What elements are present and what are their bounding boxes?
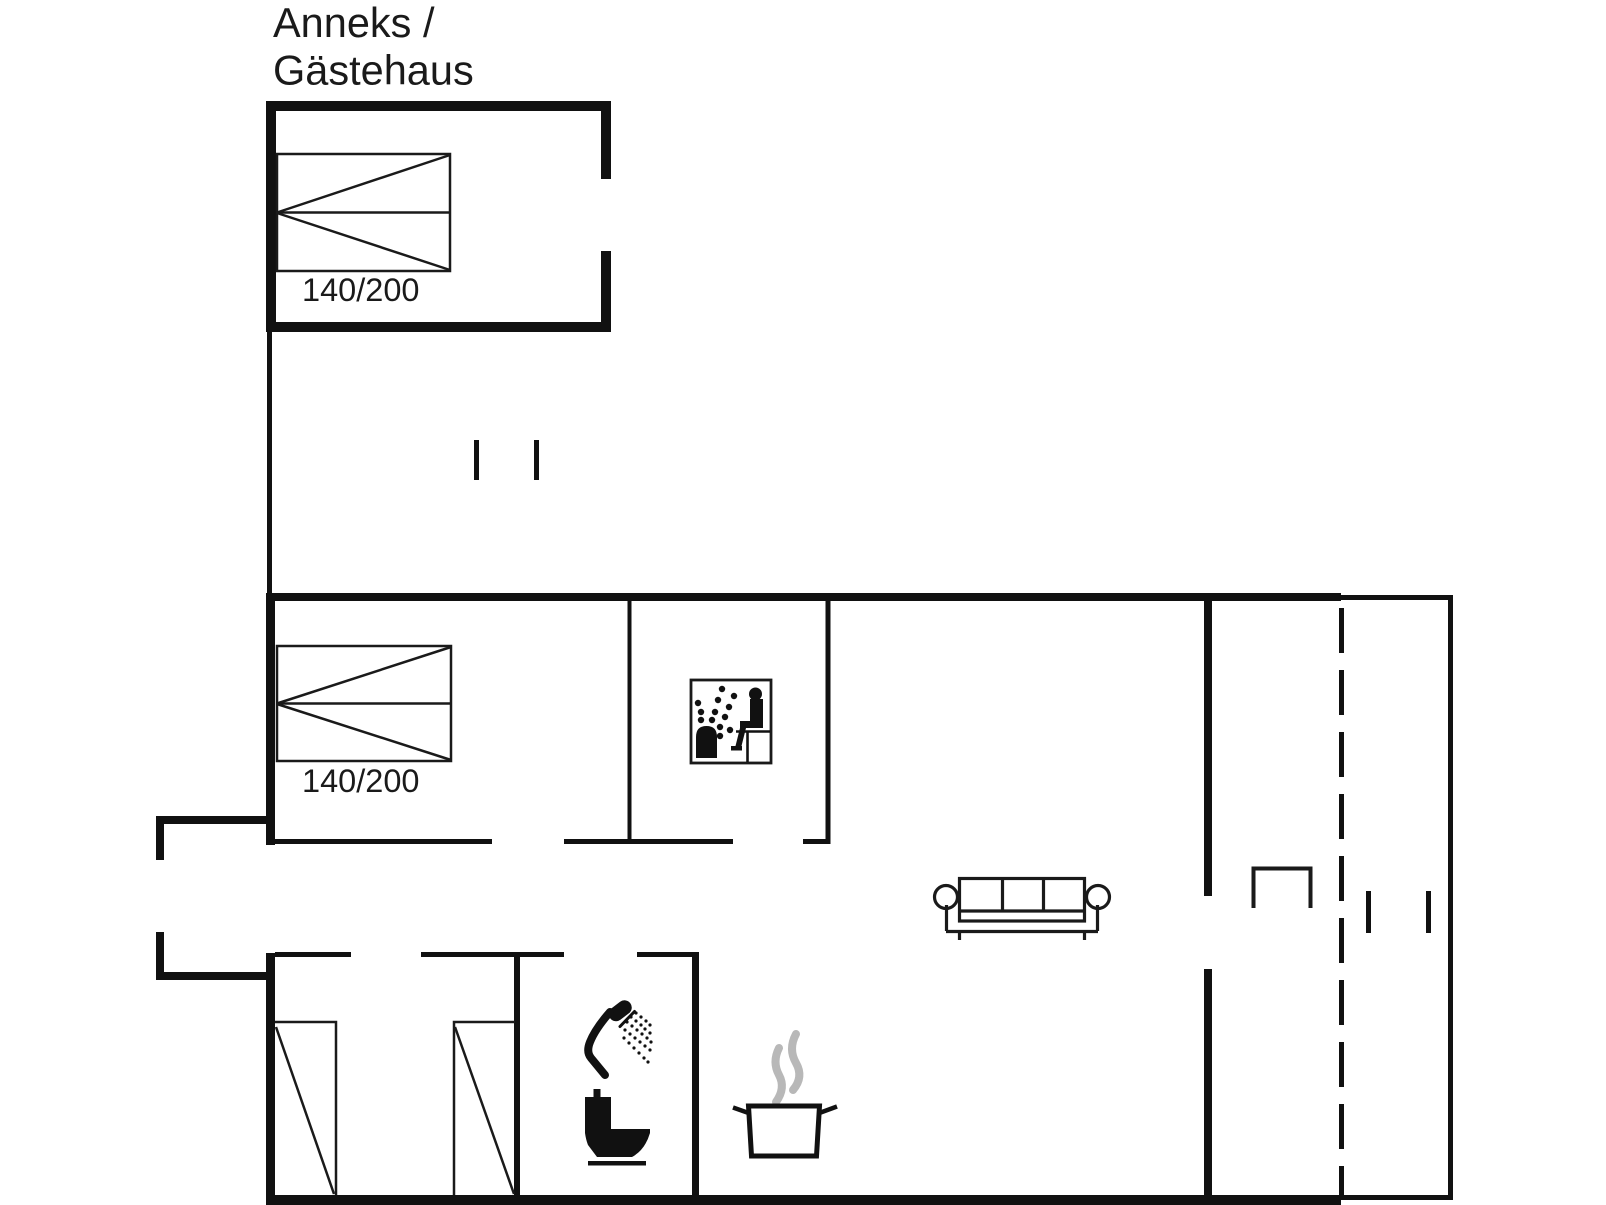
svg-text:Anneks /: Anneks / xyxy=(273,0,435,46)
svg-text:140/200: 140/200 xyxy=(302,272,419,308)
svg-text:Gästehaus: Gästehaus xyxy=(273,47,474,94)
svg-text:140/200: 140/200 xyxy=(302,763,419,799)
